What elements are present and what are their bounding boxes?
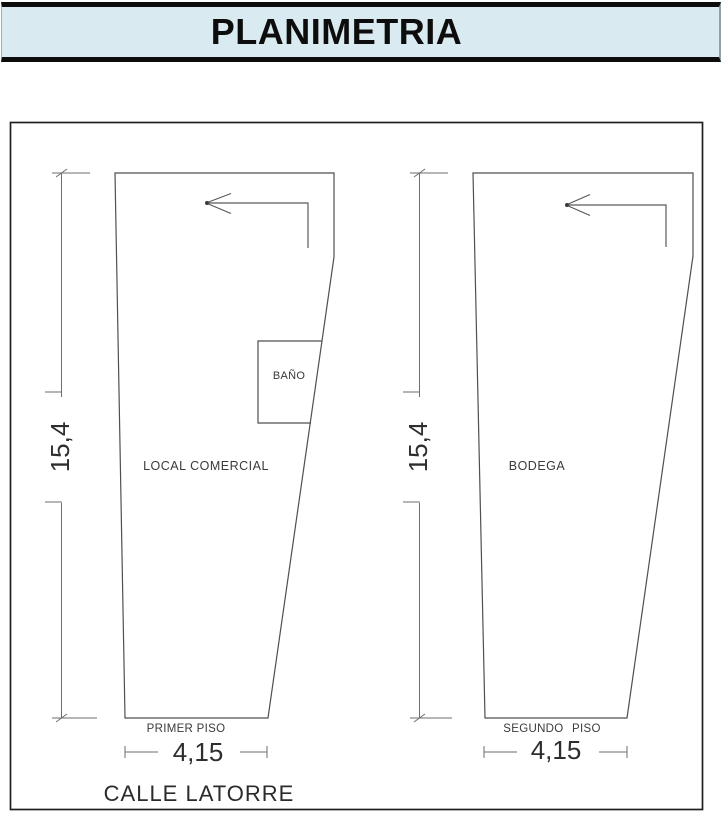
left-height-dimension-label: 15,4 [45,422,75,473]
first-floor-plan: 15,4 4,15 LOCAL COMERCIAL BAÑO PRIMER PI… [45,169,334,767]
left-width-dimension: 4,15 [125,737,267,767]
drawing-border [11,123,703,810]
street-label: CALLE LATORRE [104,781,295,806]
second-floor-room-label: BODEGA [509,459,566,473]
second-floor-label: SEGUNDO PISO [503,723,600,735]
second-floor-outline [473,173,693,718]
left-direction-arrow-icon [205,194,308,249]
first-floor-room-label: LOCAL COMERCIAL [143,459,269,473]
right-direction-arrow-icon [565,195,666,248]
left-width-dimension-label: 4,15 [173,737,224,767]
right-height-dimension: 15,4 [403,169,452,722]
bathroom-label: BAÑO [273,369,306,382]
first-floor-label: PRIMER PISO [147,723,226,735]
plan-drawing: 15,4 4,15 LOCAL COMERCIAL BAÑO PRIMER PI… [0,0,723,839]
second-floor-plan: 15,4 4,15 BODEGA SEGUNDO PISO [403,169,693,765]
right-width-dimension-label: 4,15 [531,735,582,765]
right-height-dimension-label: 15,4 [403,422,433,473]
right-width-dimension: 4,15 [484,735,627,765]
first-floor-outline [115,173,334,718]
planimetry-page: PLANIMETRIA [0,0,723,839]
left-height-dimension: 15,4 [45,169,97,722]
